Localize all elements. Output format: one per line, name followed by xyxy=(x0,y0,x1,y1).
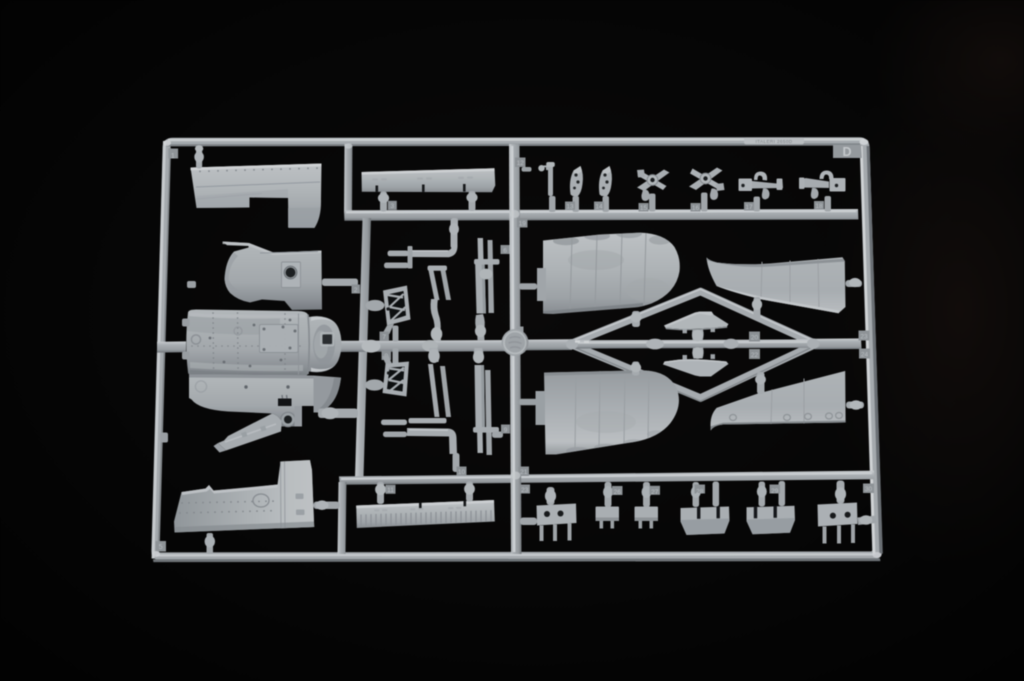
svg-text:D: D xyxy=(842,145,851,159)
svg-text:ITALERI 2650D: ITALERI 2650D xyxy=(755,139,792,144)
svg-text:11: 11 xyxy=(387,487,394,494)
svg-text:13: 13 xyxy=(566,204,574,211)
svg-text:24: 24 xyxy=(861,352,869,359)
svg-text:7: 7 xyxy=(382,334,386,341)
svg-text:16: 16 xyxy=(692,205,700,212)
svg-text:17: 17 xyxy=(745,204,753,211)
svg-text:23: 23 xyxy=(860,334,868,341)
svg-text:2: 2 xyxy=(354,287,358,294)
svg-text:28: 28 xyxy=(696,488,704,495)
svg-text:21: 21 xyxy=(520,469,528,476)
svg-text:15: 15 xyxy=(640,205,648,212)
svg-text:5: 5 xyxy=(159,544,163,551)
svg-text:29: 29 xyxy=(771,488,779,495)
svg-text:14: 14 xyxy=(595,204,603,211)
svg-text:27: 27 xyxy=(651,489,659,496)
svg-text:20: 20 xyxy=(751,335,759,342)
svg-text:22: 22 xyxy=(751,352,759,359)
svg-text:19: 19 xyxy=(519,221,527,228)
svg-text:6: 6 xyxy=(503,247,507,254)
svg-text:3: 3 xyxy=(390,203,394,210)
svg-text:10: 10 xyxy=(458,469,466,476)
svg-text:23: 23 xyxy=(521,487,529,494)
svg-text:26: 26 xyxy=(614,489,622,496)
svg-text:12: 12 xyxy=(517,160,525,167)
svg-text:9: 9 xyxy=(504,427,508,434)
svg-text:30: 30 xyxy=(865,486,873,493)
svg-text:18: 18 xyxy=(815,203,823,210)
svg-text:1: 1 xyxy=(171,153,175,160)
